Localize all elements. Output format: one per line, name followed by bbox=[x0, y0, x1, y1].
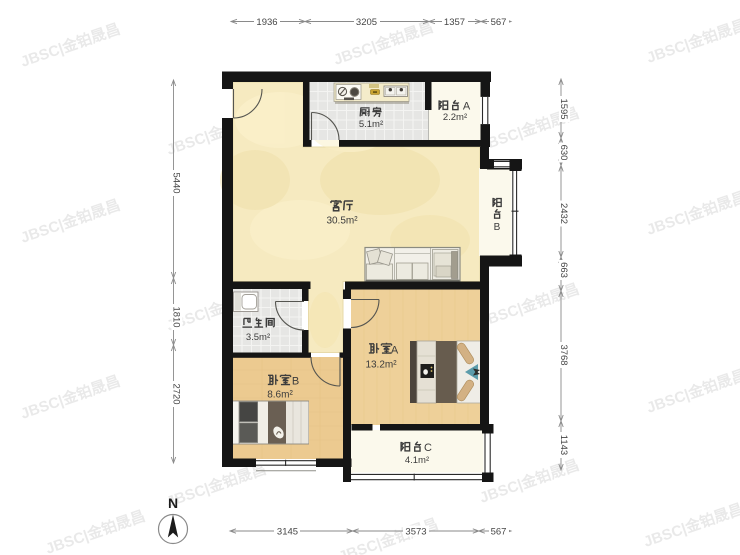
svg-text:30.5m²: 30.5m² bbox=[326, 216, 358, 227]
svg-text:A: A bbox=[391, 345, 399, 357]
svg-text:5440: 5440 bbox=[171, 172, 182, 193]
svg-text:1810: 1810 bbox=[171, 306, 182, 327]
svg-text:1595: 1595 bbox=[558, 98, 569, 119]
svg-text:1936: 1936 bbox=[256, 17, 277, 28]
svg-text:B: B bbox=[494, 222, 501, 233]
svg-text:13.2m²: 13.2m² bbox=[365, 360, 397, 371]
svg-text:A: A bbox=[463, 101, 471, 113]
svg-text:3768: 3768 bbox=[558, 344, 569, 365]
svg-text:1357: 1357 bbox=[444, 17, 465, 28]
svg-text:C: C bbox=[424, 442, 432, 454]
svg-text:3.5m²: 3.5m² bbox=[246, 332, 270, 343]
svg-text:4.1m²: 4.1m² bbox=[405, 455, 429, 466]
svg-text:630: 630 bbox=[558, 145, 569, 161]
svg-text:8.6m²: 8.6m² bbox=[267, 390, 293, 401]
svg-text:3145: 3145 bbox=[277, 527, 298, 538]
svg-text:2.2m²: 2.2m² bbox=[443, 112, 467, 123]
svg-text:B: B bbox=[292, 376, 299, 388]
svg-text:2720: 2720 bbox=[171, 383, 182, 404]
svg-text:3205: 3205 bbox=[356, 17, 377, 28]
svg-text:5.1m²: 5.1m² bbox=[359, 119, 383, 130]
svg-text:567: 567 bbox=[491, 17, 507, 28]
svg-text:1143: 1143 bbox=[558, 435, 569, 455]
svg-text:N: N bbox=[168, 495, 178, 511]
svg-text:2432: 2432 bbox=[558, 203, 569, 224]
svg-text:567: 567 bbox=[491, 527, 507, 538]
svg-text:663: 663 bbox=[558, 262, 569, 278]
svg-text:3573: 3573 bbox=[405, 527, 426, 538]
